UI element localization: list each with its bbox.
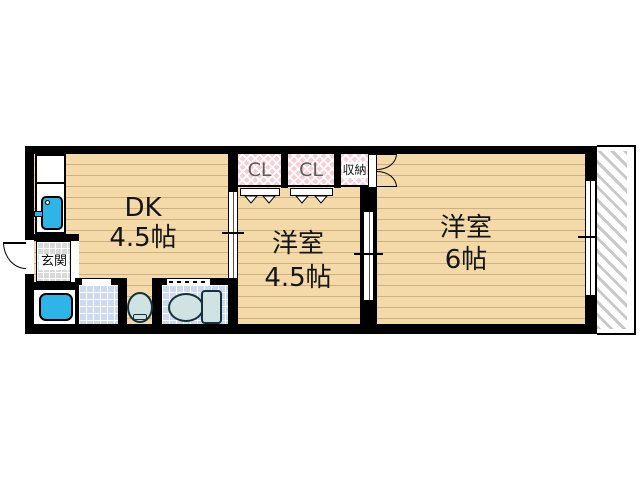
toilet-tank: [201, 290, 222, 324]
entrance-step: [71, 241, 79, 282]
balcony-hatch: [597, 151, 627, 329]
closet-label: CL: [288, 154, 334, 186]
room-dk-size: 4.5帖: [98, 224, 188, 252]
storage-double-door-icon: [377, 154, 397, 170]
storage-label: 収納: [342, 162, 367, 178]
room-west45-name: 洋室: [258, 230, 338, 258]
sink-drain-icon: [45, 200, 50, 205]
sliding-door-west: [363, 212, 374, 300]
wall: [152, 278, 162, 324]
kitchen-counter: [35, 154, 66, 184]
entrance-door-opening: [25, 240, 34, 274]
room-west6-size: 6帖: [424, 246, 508, 274]
door-swing-icon: [290, 196, 333, 204]
room-west6-name: 洋室: [426, 214, 506, 242]
storage-closet: 収納: [341, 154, 368, 187]
balcony-window: [585, 180, 596, 296]
wall: [34, 282, 79, 290]
closet-cl-1: CL: [238, 154, 281, 187]
door-tick-icon: [354, 253, 383, 255]
sink-faucet-icon: [34, 211, 43, 217]
entrance-door-arc-icon: [3, 242, 26, 269]
entrance-label: 玄関: [39, 254, 69, 270]
room-dk-name: DK: [108, 194, 178, 222]
room-west45-size: 4.5帖: [256, 264, 340, 292]
wall: [118, 278, 127, 324]
storage-double-door-icon: [377, 171, 397, 187]
closet-door-cl-1: [240, 188, 280, 196]
wash-basin-drain-icon: [133, 314, 147, 320]
door-tick-icon: [222, 232, 244, 234]
wall: [281, 154, 288, 188]
door-swing-icon: [240, 196, 280, 204]
closet-cl-2: CL: [288, 154, 334, 187]
toilet: [168, 293, 204, 322]
closet-label: CL: [238, 154, 281, 186]
wall: [334, 154, 341, 188]
window-rail-icon: [590, 181, 591, 295]
sliding-door-dk: [228, 192, 238, 278]
floorplan-image: 玄関: [0, 0, 640, 480]
bathtub: [39, 293, 73, 321]
wall: [34, 234, 79, 241]
unit-outline: 玄関: [25, 146, 597, 334]
wood-floor: 玄関: [34, 154, 585, 324]
storage-door-frame: [368, 154, 377, 188]
closet-door-cl-2: [290, 188, 333, 196]
washroom-floor: [79, 285, 118, 324]
